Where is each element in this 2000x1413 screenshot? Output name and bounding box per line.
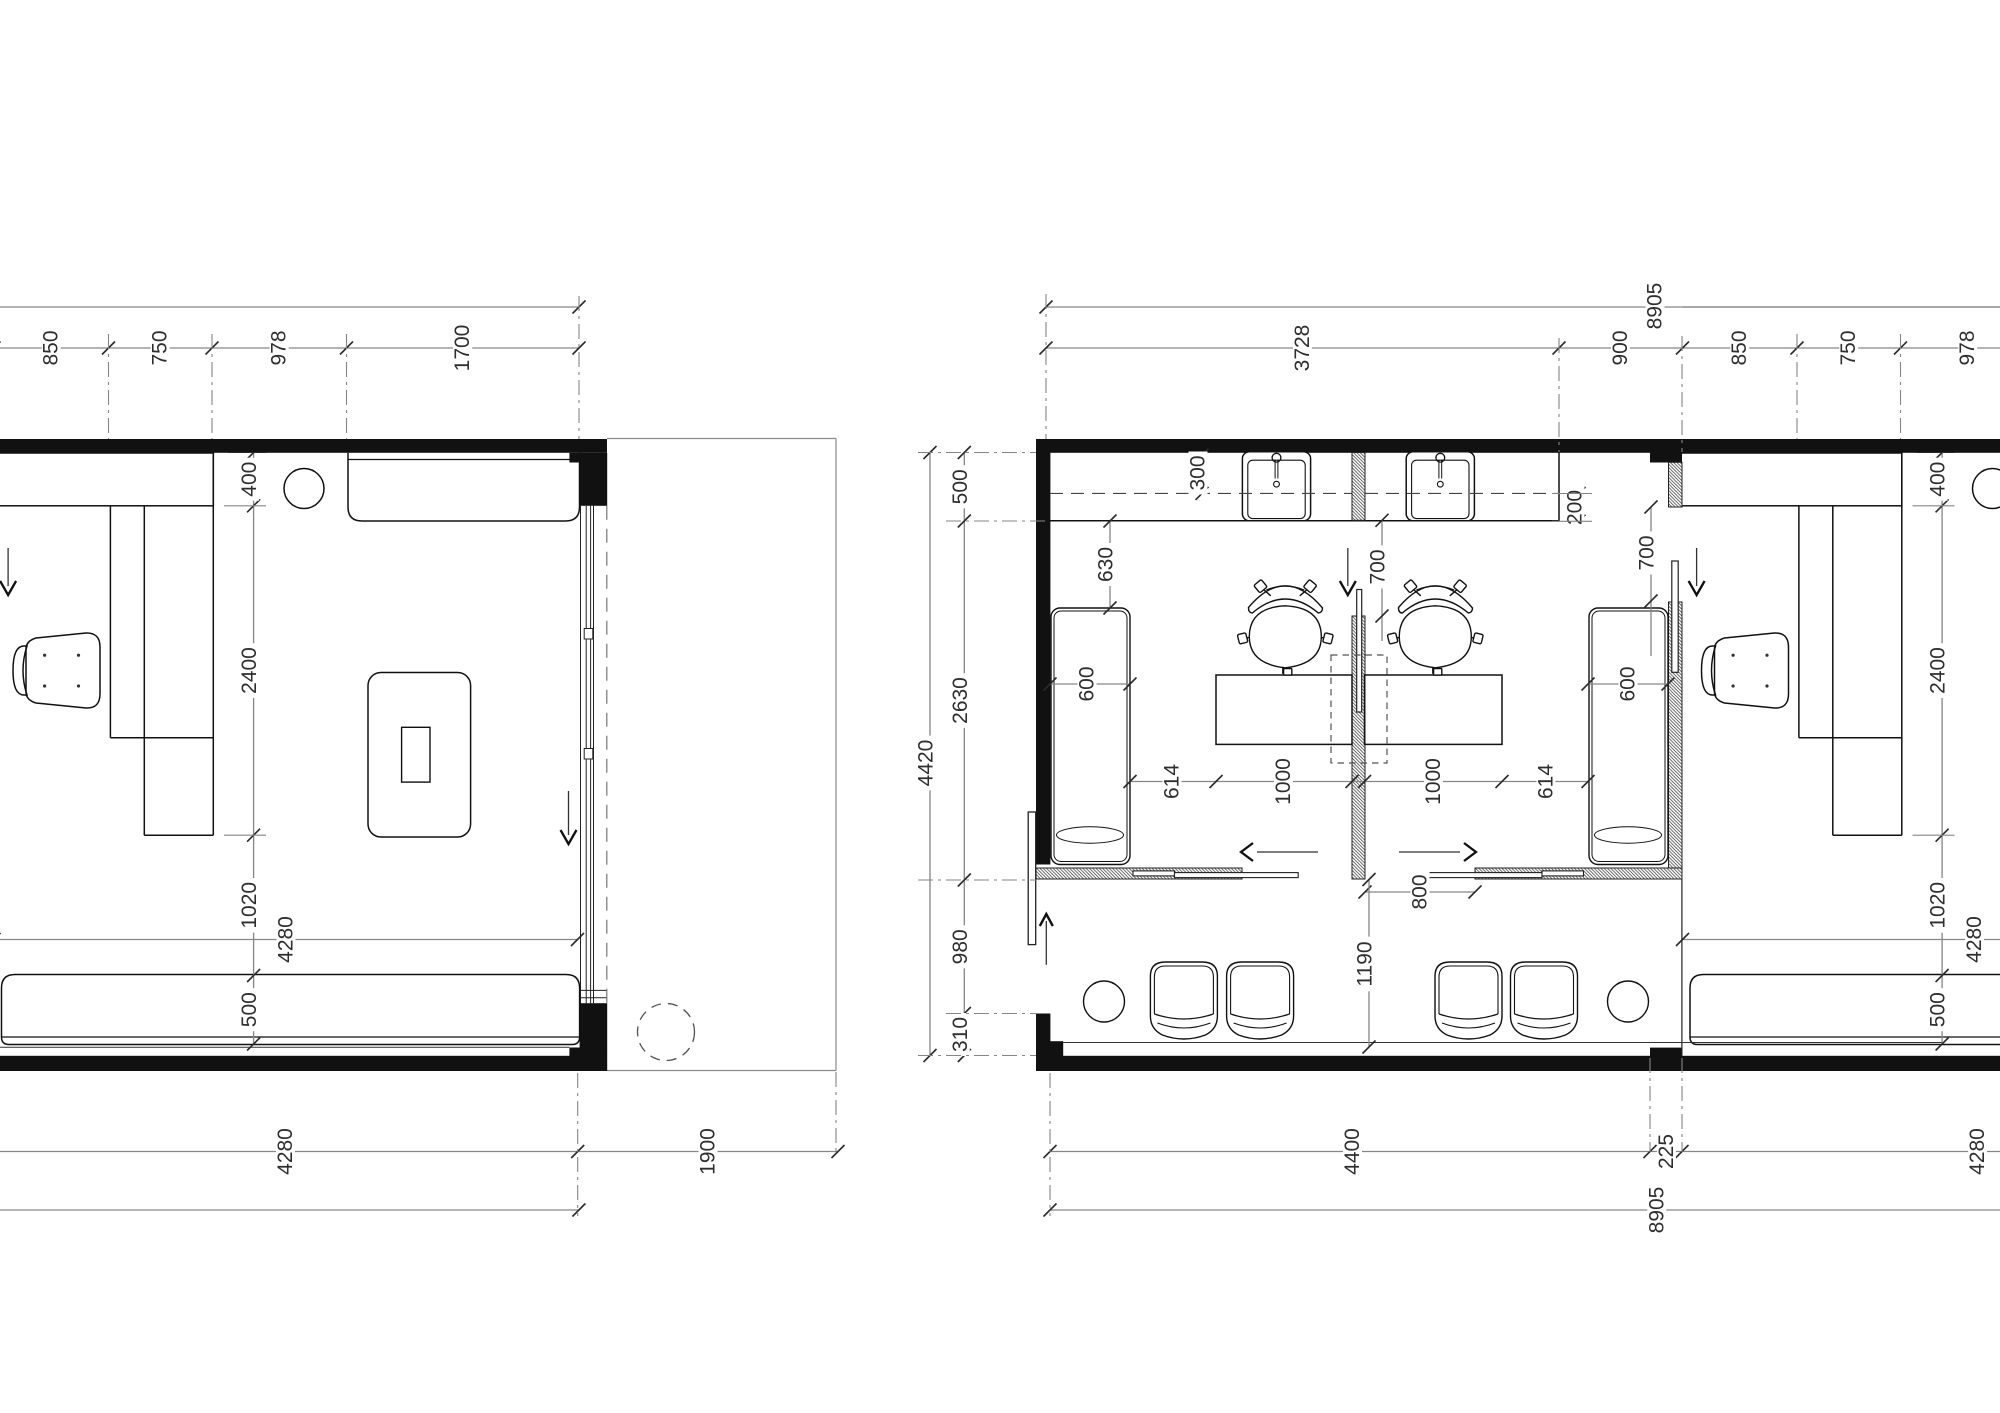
svg-text:400: 400 [238, 462, 261, 497]
svg-text:600: 600 [1617, 666, 1640, 701]
svg-text:8905: 8905 [1645, 1187, 1668, 1234]
svg-text:4280: 4280 [1966, 1128, 1989, 1175]
svg-text:225: 225 [1655, 1134, 1678, 1169]
svg-text:2630: 2630 [949, 677, 972, 724]
svg-text:500: 500 [238, 992, 261, 1027]
svg-text:850: 850 [40, 330, 63, 365]
svg-text:1000: 1000 [1422, 758, 1445, 805]
svg-text:750: 750 [149, 330, 172, 365]
svg-text:1900: 1900 [697, 1128, 720, 1175]
svg-text:630: 630 [1095, 547, 1118, 582]
svg-text:1700: 1700 [451, 325, 474, 372]
svg-text:4400: 4400 [1341, 1128, 1364, 1175]
svg-text:200: 200 [1564, 490, 1587, 525]
svg-text:2400: 2400 [238, 647, 261, 694]
svg-text:300: 300 [1187, 455, 1210, 490]
svg-text:8905: 8905 [1644, 283, 1667, 330]
svg-text:800: 800 [1409, 874, 1432, 909]
svg-text:614: 614 [1535, 764, 1558, 799]
svg-text:4420: 4420 [915, 740, 938, 787]
svg-text:4280: 4280 [275, 916, 298, 963]
svg-text:500: 500 [949, 469, 972, 504]
svg-text:1020: 1020 [238, 882, 261, 929]
svg-text:700: 700 [1636, 535, 1659, 570]
svg-text:310: 310 [949, 1017, 972, 1052]
svg-text:3728: 3728 [1291, 325, 1314, 372]
svg-text:600: 600 [1076, 666, 1099, 701]
svg-text:4280: 4280 [274, 1128, 297, 1175]
svg-text:980: 980 [949, 929, 972, 964]
svg-text:1000: 1000 [1272, 758, 1295, 805]
svg-text:614: 614 [1161, 764, 1184, 799]
svg-text:700: 700 [1367, 549, 1390, 584]
svg-text:978: 978 [268, 330, 291, 365]
svg-text:1190: 1190 [1354, 941, 1377, 986]
svg-text:900: 900 [1609, 330, 1632, 365]
